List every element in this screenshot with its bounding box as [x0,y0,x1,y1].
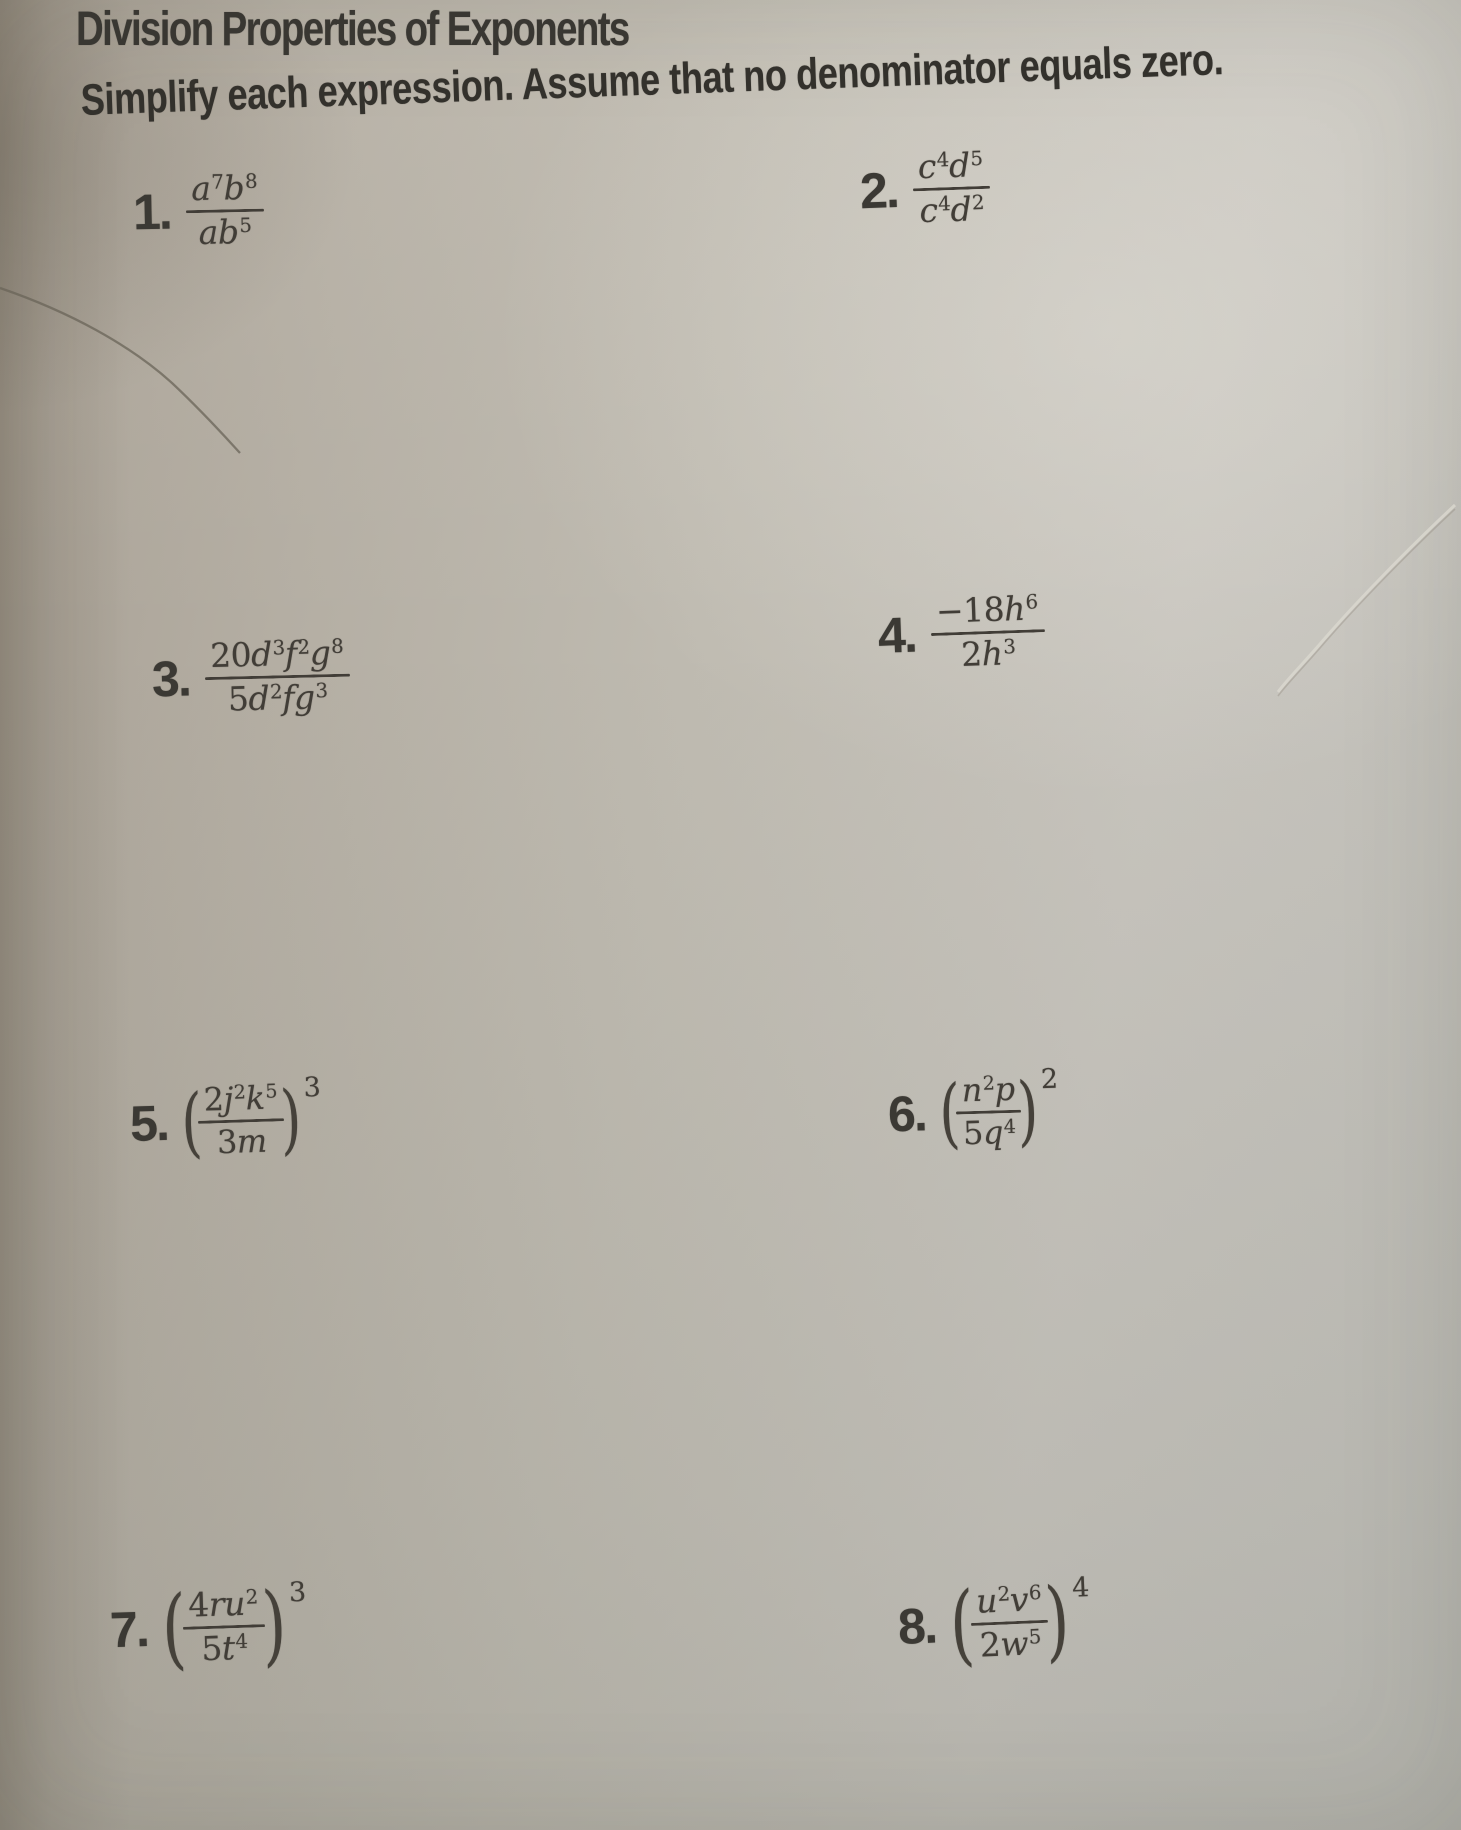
denominator: 5q4 [958,1116,1021,1151]
numerator: n2p [956,1073,1020,1108]
open-paren: ( [161,1592,187,1665]
problem-5: 5. ( 2j2k5 3m ) 3 [129,1080,323,1163]
problem-3: 3. 20d3f2g8 5d2fg3 [151,636,350,719]
close-paren: ) [1017,1079,1039,1142]
outer-exponent: 3 [303,1072,321,1104]
denominator: c4d2 [914,192,990,229]
open-paren: ( [938,1082,960,1145]
problem-number: 2. [859,161,899,220]
open-paren: ( [948,1588,975,1661]
numerator: c4d5 [912,148,988,185]
numerator: 4ru2 [183,1586,264,1623]
problem-number: 6. [887,1085,926,1144]
problem-number: 5. [129,1094,169,1153]
fraction: n2p 5q4 [956,1073,1021,1151]
open-paren: ( [180,1091,203,1154]
numerator: u2v6 [970,1582,1046,1619]
worksheet-content: Division Properties of Exponents Simplif… [0,0,1461,1830]
outer-exponent: 4 [1071,1572,1089,1604]
problem-2: 2. c4d5 c4d2 [859,148,990,231]
numerator: 20d3f2g8 [205,636,349,674]
problem-number: 1. [132,183,171,242]
problem-number: 8. [897,1597,937,1657]
denominator: 2w5 [974,1626,1047,1663]
fraction: u2v6 2w5 [970,1582,1048,1664]
outer-exponent: 2 [1041,1064,1059,1095]
problem-4: 4. −18h6 2h3 [877,591,1045,675]
numerator: −18h6 [930,591,1043,629]
numerator: a7b8 [186,171,263,207]
worksheet-title: Division Properties of Exponents [76,2,629,57]
denominator: 5t4 [196,1631,253,1667]
problem-6: 6. ( n2p 5q4 ) 2 [887,1072,1060,1153]
close-paren: ) [1044,1584,1071,1657]
problem-number: 7. [109,1600,149,1659]
close-paren: ) [261,1589,287,1662]
problem-number: 3. [151,650,190,709]
problem-1: 1. a7b8 ab5 [132,171,263,252]
fraction: c4d5 c4d2 [912,148,989,229]
problem-8: 8. ( u2v6 2w5 ) 4 [896,1580,1092,1667]
denominator: 2h3 [956,636,1022,673]
fraction: a7b8 ab5 [186,171,264,251]
outer-exponent: 3 [288,1577,306,1609]
fraction: −18h6 2h3 [930,591,1045,673]
close-paren: ) [279,1088,302,1151]
fraction: 2j2k5 3m [198,1081,284,1160]
denominator: 5d2fg3 [223,680,333,717]
worksheet-photo: Division Properties of Exponents Simplif… [0,0,1461,1830]
numerator: 2j2k5 [198,1081,283,1117]
denominator: 3m [211,1125,272,1160]
denominator: ab5 [193,215,257,251]
fraction: 4ru2 5t4 [183,1586,265,1667]
fraction: 20d3f2g8 5d2fg3 [205,636,350,718]
problem-number: 4. [877,606,917,665]
problem-7: 7. ( 4ru2 5t4 ) 3 [109,1585,309,1670]
